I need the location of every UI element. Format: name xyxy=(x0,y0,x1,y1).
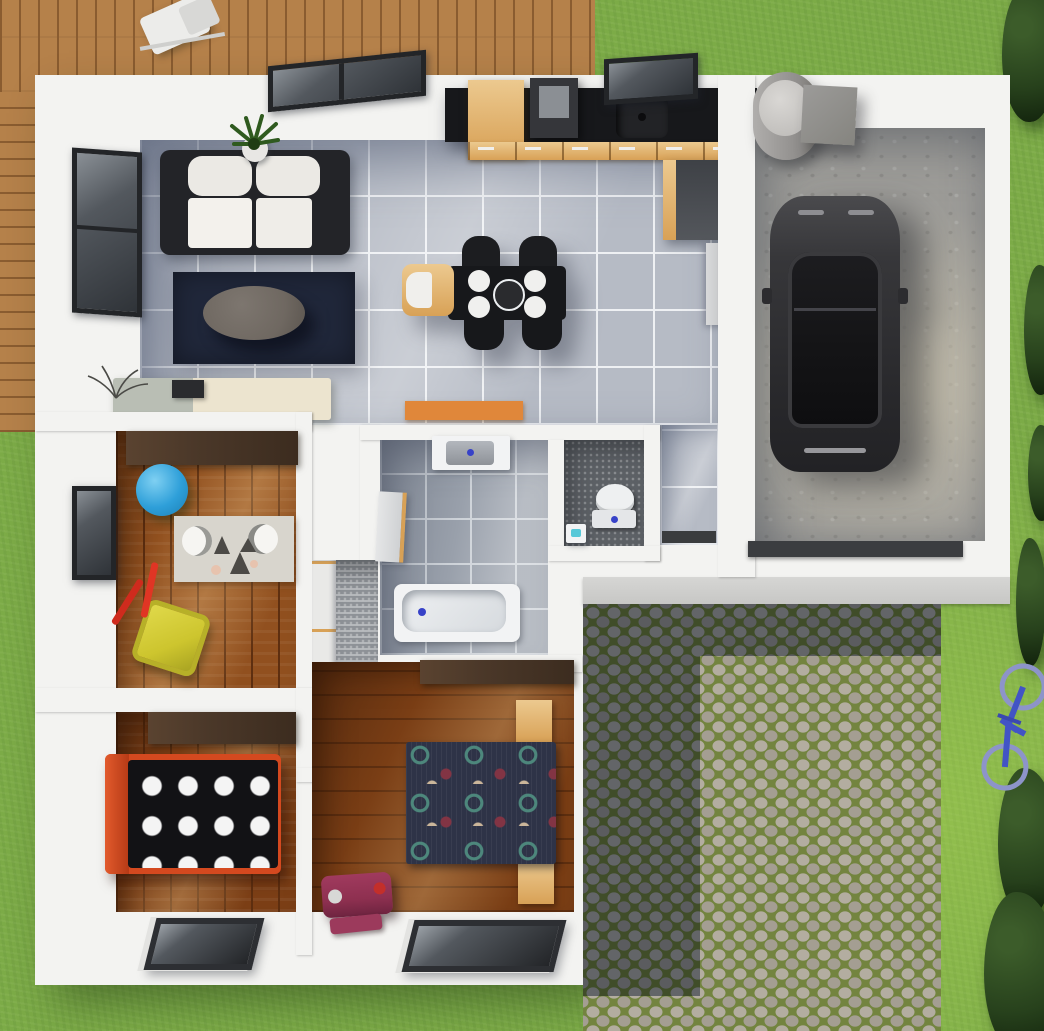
entrance-step xyxy=(583,577,1010,604)
nightstand-bottom xyxy=(518,862,554,904)
terrace-deck-left xyxy=(0,92,35,432)
kitchen-drawer-band xyxy=(468,142,757,160)
bedroom1-wardrobe xyxy=(148,712,296,744)
bathtub xyxy=(394,584,520,642)
hood-top xyxy=(539,86,569,118)
play-rug xyxy=(174,516,294,582)
nursery-window xyxy=(72,486,116,580)
car-mirror-left xyxy=(762,288,772,304)
nursery-wardrobe xyxy=(126,431,298,465)
dining-chair-top-right xyxy=(519,236,557,270)
car-rear-trim xyxy=(804,448,866,453)
plant-leaves xyxy=(226,114,282,160)
potted-plant xyxy=(226,114,282,166)
high-chair-seat xyxy=(406,272,432,308)
wall-living-nursery xyxy=(35,412,312,431)
bed1-duvet xyxy=(128,760,278,868)
house-shadow-top xyxy=(700,604,941,656)
plate xyxy=(468,270,490,292)
basin-water xyxy=(571,529,581,537)
twig-decor xyxy=(86,364,150,400)
bed2-duvet xyxy=(406,742,556,864)
play-rug-trees xyxy=(210,534,258,578)
plate xyxy=(524,296,546,318)
car-windshield-line xyxy=(794,308,876,311)
suitcase xyxy=(321,872,394,919)
driveway xyxy=(583,604,941,1031)
cooktop-hood xyxy=(530,78,578,138)
high-chair xyxy=(402,264,454,316)
nightstand-top xyxy=(516,700,552,742)
wall-nursery-hall xyxy=(296,412,312,688)
car-mirror-right xyxy=(898,288,908,304)
dining-chair-top-left xyxy=(462,236,500,270)
dining-chair-bottom-right xyxy=(522,316,562,350)
play-rug-animal xyxy=(182,526,212,556)
house-shadow-left xyxy=(583,604,700,996)
toilet-tank xyxy=(592,510,636,528)
sideboard-box-decor xyxy=(172,380,204,398)
car-hood-trim xyxy=(848,210,874,215)
suitcase-wheel xyxy=(328,889,343,904)
bed1-headboard xyxy=(105,754,129,874)
bathroom-door xyxy=(375,491,407,562)
wall-garage-left xyxy=(718,75,755,577)
drawer-handles xyxy=(478,147,748,150)
living-window-left xyxy=(72,148,142,318)
hall-runner-orange xyxy=(405,401,523,420)
skylight-mullion xyxy=(339,63,344,100)
sofa-seat-cushion-left xyxy=(188,198,252,248)
bathtub-drain xyxy=(418,608,426,616)
garage-storage-box xyxy=(801,85,858,146)
floor-plan-scene xyxy=(0,0,1044,1031)
entry-hall-floor xyxy=(660,425,718,545)
hedge-right-3 xyxy=(1016,538,1044,666)
gym-ball xyxy=(136,464,188,516)
counter-right-oak-edge xyxy=(663,160,676,240)
serving-bowl xyxy=(493,279,525,311)
car xyxy=(770,196,900,472)
dining-chair-bottom-left xyxy=(464,316,504,350)
bedroom1-roof-window xyxy=(144,918,265,970)
vanity-drain xyxy=(467,449,474,456)
bedroom2-wardrobe xyxy=(420,660,574,684)
front-door-mat xyxy=(662,531,716,543)
bathroom-vanity xyxy=(432,436,510,470)
car-hood-trim xyxy=(798,210,824,215)
plate xyxy=(468,296,490,318)
wall-nursery-bedroom1 xyxy=(35,688,312,712)
garage-door xyxy=(748,541,963,557)
wc-hand-basin xyxy=(566,524,586,543)
coffee-table xyxy=(203,286,305,340)
sink-drain xyxy=(638,113,646,121)
bedroom2-roof-window xyxy=(402,920,567,972)
plate xyxy=(524,270,546,292)
wall-wc-right xyxy=(644,425,660,561)
suitcase-handle xyxy=(373,882,386,895)
window-mullion xyxy=(77,225,137,233)
kitchen-window xyxy=(604,53,698,106)
wall-bedroom1-bedroom2 xyxy=(296,688,312,955)
toilet-flush-button xyxy=(611,516,618,523)
car-glass-roof xyxy=(788,252,882,428)
wall-bath-wc xyxy=(548,440,564,546)
wall-bathroom-top xyxy=(360,425,660,440)
dining-table xyxy=(448,266,566,320)
wall-wc-bottom xyxy=(548,546,660,561)
sofa-seat-cushion-right xyxy=(256,198,312,248)
